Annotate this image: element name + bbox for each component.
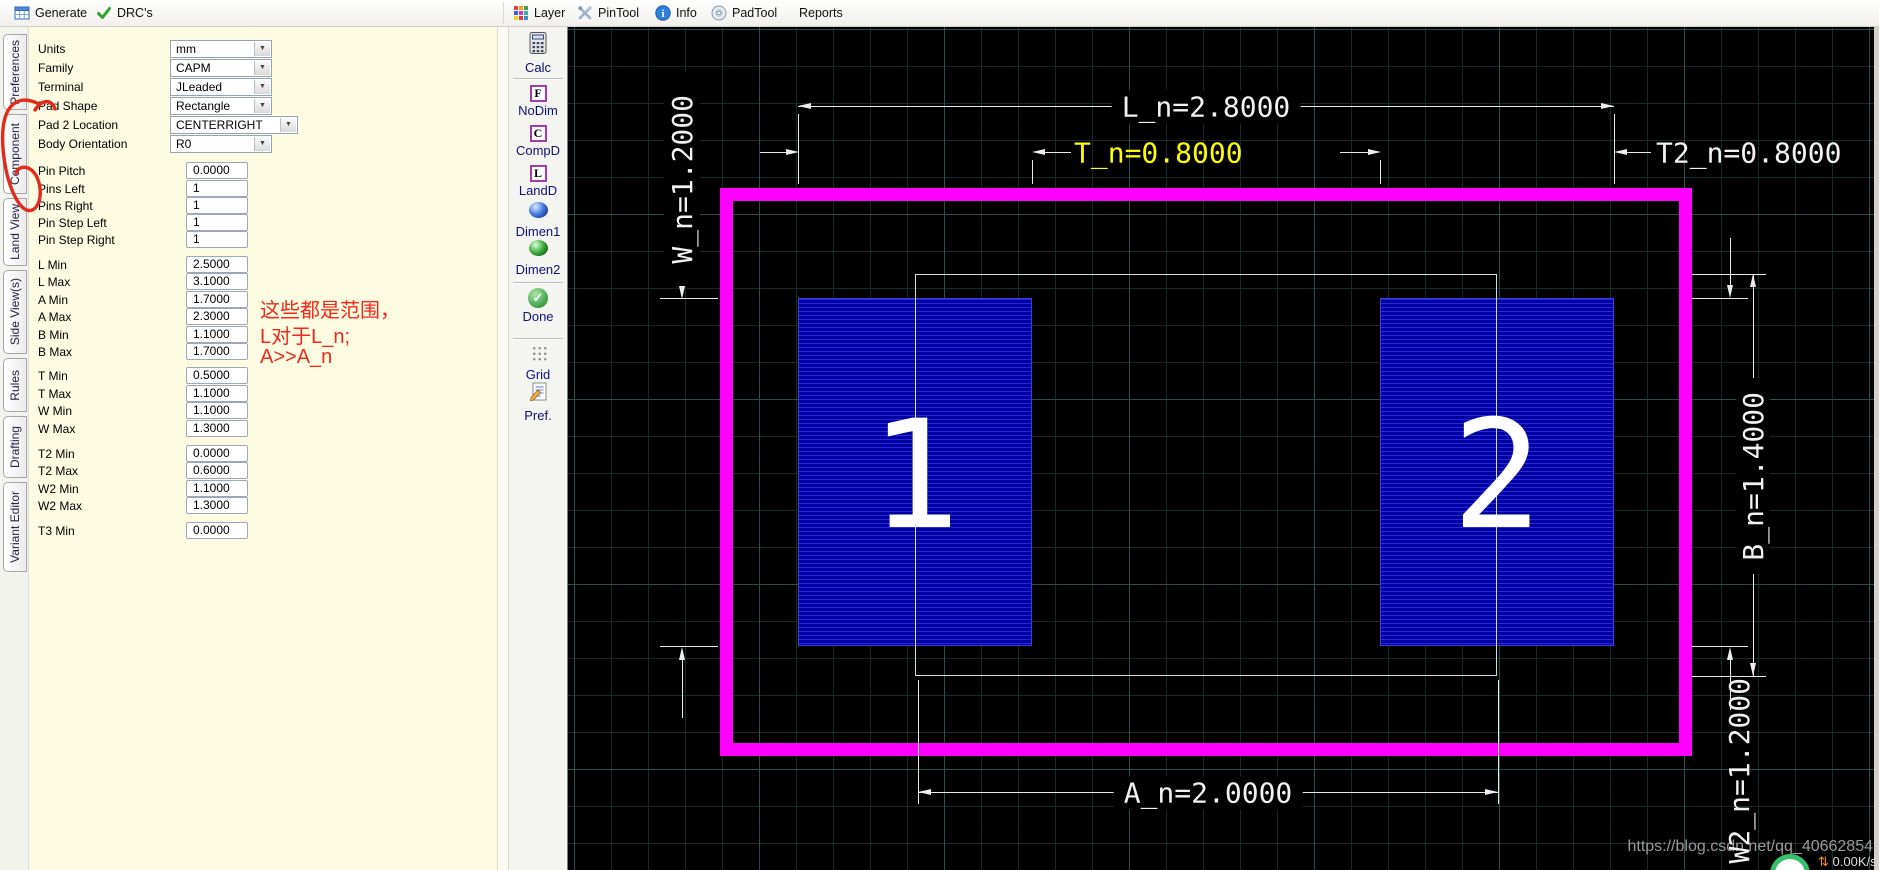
b-max-input[interactable]: 1.7000 xyxy=(186,343,248,360)
cad-canvas[interactable]: 1 2 L_n=2.8000 T_n=0.8000 T2_n=0.8000 W_… xyxy=(568,26,1874,870)
arrow-left-icon xyxy=(1614,149,1627,155)
l-max-label: L Max xyxy=(38,275,70,289)
pin-step-left-input[interactable]: 1 xyxy=(186,214,248,231)
w2-max-label: W2 Max xyxy=(38,499,82,513)
green-sphere-icon xyxy=(529,240,548,256)
red-note-line2: L对于L_n; xyxy=(260,320,350,349)
arrow-left-icon xyxy=(1032,149,1045,155)
pins-left-input[interactable]: 1 xyxy=(186,180,248,197)
landd-button[interactable]: L LandD xyxy=(509,164,567,198)
row-t2-max: T2 Max 0.6000 xyxy=(28,462,497,482)
pad-shape-dropdown[interactable]: Rectangle▼ xyxy=(170,97,272,115)
t2-min-input[interactable]: 0.0000 xyxy=(186,445,248,462)
chevron-down-icon[interactable]: ▼ xyxy=(254,137,270,151)
arrow-down-icon xyxy=(1727,285,1733,298)
extension-line xyxy=(1498,680,1499,804)
letter-c-icon: C xyxy=(530,125,547,142)
extension-line xyxy=(1692,298,1748,299)
tools-icon xyxy=(577,5,593,21)
extension-line xyxy=(660,298,718,299)
arrow-up-icon xyxy=(1750,274,1756,287)
t3-min-label: T3 Min xyxy=(38,524,75,538)
tab-label: Side View(s) xyxy=(8,278,22,345)
done-button[interactable]: ✓ Done xyxy=(509,288,567,324)
net-speed-value: 0.00K/s xyxy=(1833,854,1874,869)
reports-label: Reports xyxy=(799,6,843,20)
iconbar-separator xyxy=(513,282,563,283)
done-label: Done xyxy=(509,309,567,324)
green-check-icon: ✓ xyxy=(528,288,548,308)
dim-line xyxy=(682,660,683,718)
arrow-up-icon xyxy=(1727,647,1733,660)
t-min-input[interactable]: 0.5000 xyxy=(186,367,248,384)
dim-a-label: A_n=2.0000 xyxy=(1114,777,1303,810)
dimen1-label: Dimen1 xyxy=(509,224,567,239)
pad-shape-value: Rectangle xyxy=(176,99,230,113)
units-value: mm xyxy=(176,42,196,56)
arrow-right-icon xyxy=(1601,103,1614,109)
tab-side-views[interactable]: Side View(s) xyxy=(3,270,27,354)
family-label: Family xyxy=(38,61,73,75)
pin-step-right-label: Pin Step Right xyxy=(38,233,115,247)
t-max-label: T Max xyxy=(38,387,71,401)
row-terminal: Terminal JLeaded▼ xyxy=(28,78,497,98)
floating-badge[interactable] xyxy=(1770,854,1810,870)
w2-min-label: W2 Min xyxy=(38,482,79,496)
drcs-button[interactable]: DRC's xyxy=(96,0,153,26)
t2-max-label: T2 Max xyxy=(38,464,78,478)
extension-line xyxy=(1032,160,1033,184)
pintool-button[interactable]: PinTool xyxy=(577,0,639,26)
row-family: Family CAPM▼ xyxy=(28,59,497,79)
calculator-icon xyxy=(529,32,547,54)
b-min-input[interactable]: 1.1000 xyxy=(186,326,248,343)
a-min-input[interactable]: 1.7000 xyxy=(186,291,248,308)
row-body-orientation: Body Orientation R0▼ xyxy=(28,135,497,155)
extension-line xyxy=(1380,160,1381,184)
padtool-label: PadTool xyxy=(732,6,777,20)
info-icon: i xyxy=(655,5,671,21)
row-units: Units mm▼ xyxy=(28,40,497,60)
red-note-line1: 这些都是范围， xyxy=(260,294,400,323)
nodim-button[interactable]: F NoDim xyxy=(509,84,567,118)
extension-line xyxy=(660,646,718,647)
l-min-input[interactable]: 2.5000 xyxy=(186,256,248,273)
pin-pitch-input[interactable]: 0.0000 xyxy=(186,162,248,179)
extension-line xyxy=(1692,274,1766,275)
dot-grid-icon xyxy=(530,344,547,361)
info-button[interactable]: i Info xyxy=(655,0,697,26)
row-w-min: W Min 1.1000 xyxy=(28,402,497,422)
row-l-max: L Max 3.1000 xyxy=(28,273,497,293)
w-min-label: W Min xyxy=(38,404,72,418)
b-max-label: B Max xyxy=(38,345,72,359)
b-min-label: B Min xyxy=(38,328,69,342)
terminal-dropdown[interactable]: JLeaded▼ xyxy=(170,78,272,96)
nodim-label: NoDim xyxy=(509,103,567,118)
arrow-up-icon xyxy=(679,647,685,660)
row-pin-step-right: Pin Step Right 1 xyxy=(28,231,497,251)
chevron-down-icon[interactable]: ▼ xyxy=(280,118,296,132)
calc-button[interactable]: Calc xyxy=(509,32,567,75)
landd-label: LandD xyxy=(509,183,567,198)
dim-line xyxy=(760,152,788,153)
blue-sphere-icon xyxy=(529,202,548,218)
footprint-generator-window: Generate DRC's Layer PinTool i Info PadT… xyxy=(0,0,1879,870)
component-body-outline xyxy=(915,274,1497,676)
row-t-min: T Min 0.5000 xyxy=(28,367,497,387)
calc-label: Calc xyxy=(509,60,567,75)
pad-2-number: 2 xyxy=(1452,389,1542,563)
updown-arrows-icon: ⇅ xyxy=(1818,854,1829,869)
family-value: CAPM xyxy=(176,61,211,75)
red-note-line3: A>>A_n xyxy=(260,346,332,369)
chevron-down-icon[interactable]: ▼ xyxy=(254,61,270,75)
dimen1-button[interactable]: Dimen1 xyxy=(509,202,567,239)
chevron-down-icon[interactable]: ▼ xyxy=(254,80,270,94)
iconbar-separator xyxy=(513,338,563,339)
dim-line xyxy=(1627,152,1651,153)
t-max-input[interactable]: 1.1000 xyxy=(186,385,248,402)
letter-f-icon: F xyxy=(530,85,547,102)
layer-button[interactable]: Layer xyxy=(513,0,565,26)
top-toolbar: Generate DRC's Layer PinTool i Info PadT… xyxy=(0,0,1879,27)
t-min-label: T Min xyxy=(38,369,68,383)
dim-line xyxy=(1340,152,1368,153)
pins-right-input[interactable]: 1 xyxy=(186,197,248,214)
w-max-input[interactable]: 1.3000 xyxy=(186,420,248,437)
arrow-right-icon xyxy=(1368,149,1381,155)
a-max-input[interactable]: 2.3000 xyxy=(186,308,248,325)
dimen2-button[interactable]: Dimen2 xyxy=(509,240,567,277)
compd-button[interactable]: C CompD xyxy=(509,124,567,158)
chevron-down-icon[interactable]: ▼ xyxy=(254,42,270,56)
pad2-location-dropdown[interactable]: CENTERRIGHT▼ xyxy=(170,116,298,134)
a-min-label: A Min xyxy=(38,293,68,307)
tab-rules[interactable]: Rules xyxy=(3,358,27,412)
dim-w-label: W_n=1.2000 xyxy=(664,72,700,286)
letter-l-icon: L xyxy=(530,165,547,182)
net-speed-indicator: ⇅ 0.00K/s xyxy=(1818,854,1874,870)
generate-label: Generate xyxy=(35,6,87,20)
w-min-input[interactable]: 1.1000 xyxy=(186,402,248,419)
svg-text:i: i xyxy=(661,8,664,20)
row-w2-max: W2 Max 1.3000 xyxy=(28,497,497,517)
table-icon xyxy=(14,5,30,21)
info-label: Info xyxy=(676,6,697,20)
pref-label: Pref. xyxy=(509,408,567,423)
units-dropdown[interactable]: mm▼ xyxy=(170,40,272,58)
dim-line xyxy=(1730,238,1731,286)
row-w-max: W Max 1.3000 xyxy=(28,420,497,440)
a-max-label: A Max xyxy=(38,310,71,324)
row-pin-pitch: Pin Pitch 0.0000 xyxy=(28,162,497,182)
pin-step-right-input[interactable]: 1 xyxy=(186,231,248,248)
panel-splitter[interactable] xyxy=(497,26,509,870)
dim-t2-label: T2_n=0.8000 xyxy=(1656,137,1841,170)
row-t3-min: T3 Min 0.0000 xyxy=(28,522,497,542)
t2-max-input[interactable]: 0.6000 xyxy=(186,462,248,479)
family-dropdown[interactable]: CAPM▼ xyxy=(170,59,272,77)
disc-icon xyxy=(711,5,727,21)
t3-min-input[interactable]: 0.0000 xyxy=(186,522,248,539)
iconbar-separator xyxy=(513,78,563,79)
drcs-label: DRC's xyxy=(117,6,153,20)
arrow-right-icon xyxy=(1485,789,1498,795)
window-edge xyxy=(1874,26,1879,870)
doc-pencil-icon xyxy=(529,382,547,402)
body-orientation-dropdown[interactable]: R0▼ xyxy=(170,135,272,153)
green-check-icon xyxy=(96,5,112,21)
tab-label: Variant Editor xyxy=(8,491,22,563)
compd-label: CompD xyxy=(509,143,567,158)
tab-drafting[interactable]: Drafting xyxy=(3,416,27,478)
l-max-input[interactable]: 3.1000 xyxy=(186,273,248,290)
dim-t-label: T_n=0.8000 xyxy=(1074,137,1243,170)
grid-label: Grid xyxy=(509,367,567,382)
action-icon-bar: Calc F NoDim C CompD L LandD Dimen1 Dime… xyxy=(509,26,568,870)
dimen2-label: Dimen2 xyxy=(509,262,567,277)
parameters-panel: Units mm▼ Family CAPM▼ Terminal JLeaded▼… xyxy=(28,26,497,870)
grid-button[interactable]: Grid xyxy=(509,344,567,382)
w2-max-input[interactable]: 1.3000 xyxy=(186,497,248,514)
tab-variant-editor[interactable]: Variant Editor xyxy=(3,482,27,572)
toolbar-divider xyxy=(503,2,504,24)
units-label: Units xyxy=(38,42,65,56)
terminal-value: JLeaded xyxy=(176,80,222,94)
reports-button[interactable]: Reports xyxy=(799,0,843,26)
arrow-right-icon xyxy=(786,149,799,155)
w-max-label: W Max xyxy=(38,422,75,436)
chevron-down-icon[interactable]: ▼ xyxy=(254,99,270,113)
l-min-label: L Min xyxy=(38,258,67,272)
layer-label: Layer xyxy=(534,6,565,20)
tab-label: Rules xyxy=(8,370,22,401)
t2-min-label: T2 Min xyxy=(38,447,75,461)
red-annotation-circle xyxy=(0,88,59,224)
dim-b-label: B_n=1.4000 xyxy=(1736,378,1770,574)
arrow-left-icon xyxy=(798,103,811,109)
row-pad-shape: Pad Shape Rectangle▼ xyxy=(28,97,497,117)
w2-min-input[interactable]: 1.1000 xyxy=(186,480,248,497)
dim-l-label: L_n=2.8000 xyxy=(1112,91,1301,124)
extension-line xyxy=(1692,646,1748,647)
extension-line xyxy=(918,680,919,804)
dim-w2-label: W2_n=1.2000 xyxy=(1720,666,1758,870)
pad2-location-value: CENTERRIGHT xyxy=(176,118,263,132)
dim-line xyxy=(1045,152,1071,153)
pref-button[interactable]: Pref. xyxy=(509,382,567,423)
generate-button[interactable]: Generate xyxy=(14,0,87,26)
layer-icon xyxy=(513,5,529,21)
tab-label: Drafting xyxy=(8,426,22,468)
body-orientation-value: R0 xyxy=(176,137,191,151)
arrow-left-icon xyxy=(918,789,931,795)
padtool-button[interactable]: PadTool xyxy=(711,0,777,26)
pintool-label: PinTool xyxy=(598,6,639,20)
row-pad2-location: Pad 2 Location CENTERRIGHT▼ xyxy=(28,116,497,136)
pad-1-number: 1 xyxy=(870,389,960,563)
